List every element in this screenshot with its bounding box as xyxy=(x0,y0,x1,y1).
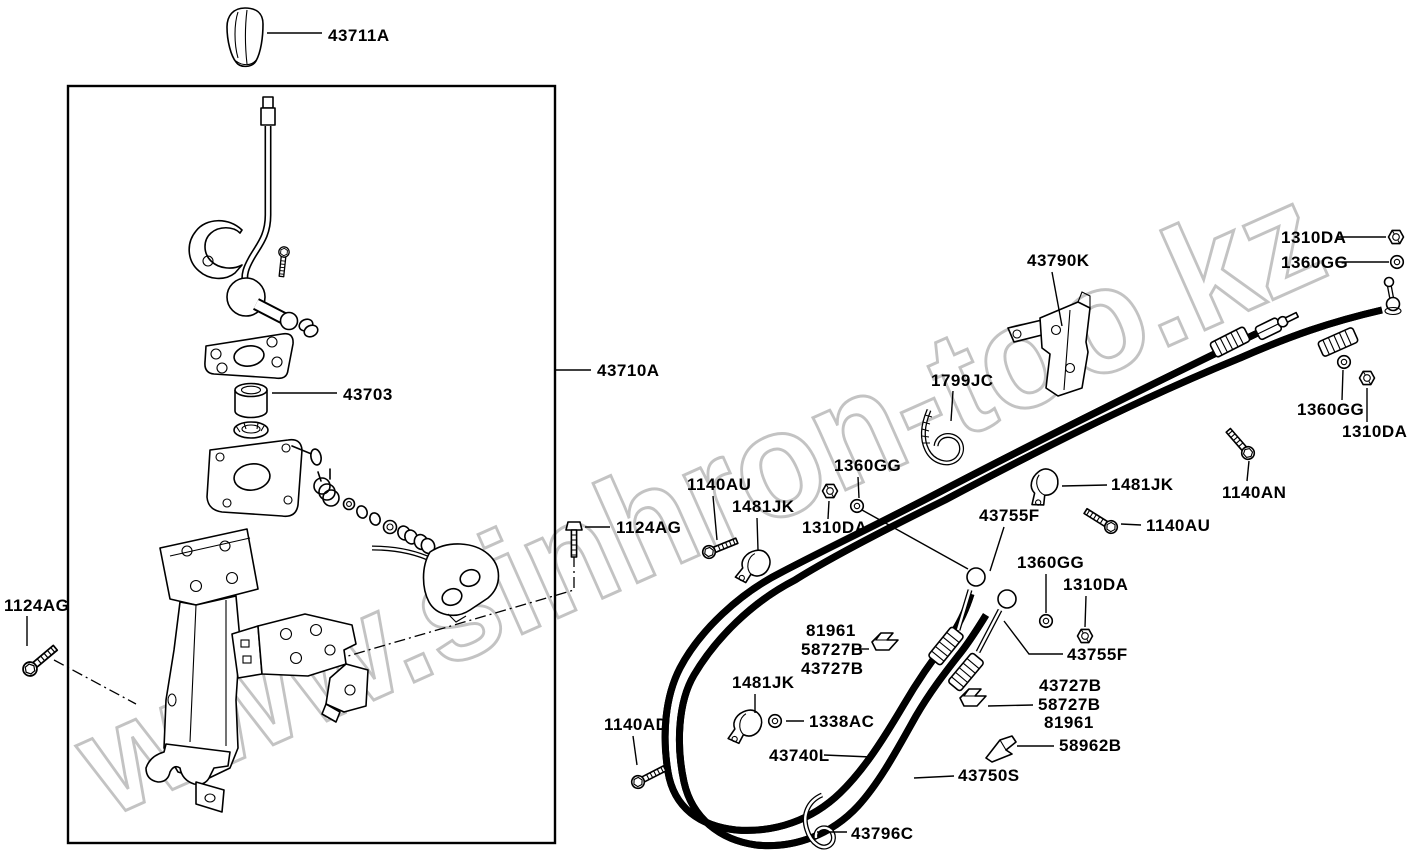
part-label-1360GG-right: 1360GG xyxy=(1297,400,1364,419)
part-label-43710A: 43710A xyxy=(597,361,660,380)
part-label-1481JK-top: 1481JK xyxy=(732,497,795,516)
part-label-1140AN: 1140AN xyxy=(1222,483,1286,502)
nut-1360GG-right xyxy=(1338,356,1351,369)
part-label-43740L: 43740L xyxy=(769,746,830,765)
part-label-1338AC: 1338AC xyxy=(809,712,874,731)
nut-1310DA-topright xyxy=(1389,230,1404,243)
upper-plate-drawing xyxy=(205,334,293,379)
part-label-43727B-left: 43727B xyxy=(801,659,864,678)
shift-lever-drawing xyxy=(189,97,319,339)
bushing-43703-drawing xyxy=(235,384,267,418)
part-label-1140AD: 1140AD xyxy=(604,715,668,734)
part-label-58727B-left: 58727B xyxy=(801,640,864,659)
parts-diagram-canvas: www.sinhron-too.kz xyxy=(0,0,1423,862)
part-label-1360GG-lower: 1360GG xyxy=(1017,553,1084,572)
part-label-1140AU-right: 1140AU xyxy=(1146,516,1210,535)
part-label-43755F-upper: 43755F xyxy=(979,506,1040,525)
part-label-1310DA-topright: 1310DA xyxy=(1281,228,1346,247)
bracket-58962B-drawing xyxy=(986,736,1016,762)
part-label-43703: 43703 xyxy=(343,385,393,404)
part-label-1799JC: 1799JC xyxy=(931,371,994,390)
part-label-1140AU-top: 1140AU xyxy=(687,475,751,494)
clip-1481JK-cable xyxy=(1023,466,1064,508)
shift-knob-drawing xyxy=(227,8,263,66)
parts-diagram-page: www.sinhron-too.kz xyxy=(0,0,1423,862)
nut-1338AC xyxy=(769,715,782,728)
bolt-1140AU-right xyxy=(1082,506,1119,536)
spring-drawing xyxy=(314,469,339,506)
part-label-1310DA-lower: 1310DA xyxy=(1063,575,1128,594)
part-label-1481JK-cable: 1481JK xyxy=(1111,475,1174,494)
seal-ring-drawing xyxy=(234,422,268,438)
part-label-58962B: 58962B xyxy=(1059,736,1122,755)
part-label-1481JK-loop: 1481JK xyxy=(732,673,795,692)
part-label-1124AG-left: 1124AG xyxy=(4,596,69,615)
part-label-1310DA-mid: 1310DA xyxy=(802,518,867,537)
bolt-1140AN xyxy=(1224,426,1257,462)
clip-58727B-left xyxy=(872,633,898,650)
part-label-81961-right: 81961 xyxy=(1044,713,1094,732)
part-label-1310DA-right: 1310DA xyxy=(1342,422,1407,441)
nut-1360GG-lower xyxy=(1040,615,1053,628)
part-label-43796C: 43796C xyxy=(851,824,914,843)
nut-1310DA-right xyxy=(1360,371,1375,384)
nut-1310DA-mid xyxy=(823,484,838,497)
clip-1481JK-loop xyxy=(728,709,763,745)
lever-housing-drawing xyxy=(207,440,323,517)
part-label-58727B-right: 58727B xyxy=(1038,695,1101,714)
part-label-43711A: 43711A xyxy=(328,26,390,45)
nut-1360GG-mid xyxy=(851,500,864,513)
nut-1310DA-lower xyxy=(1078,629,1093,642)
part-label-43790K: 43790K xyxy=(1027,251,1090,270)
part-label-1360GG-mid: 1360GG xyxy=(834,456,901,475)
part-label-43755F-lower: 43755F xyxy=(1067,645,1128,664)
clip-58727B-right xyxy=(960,689,986,706)
part-label-43727B-right: 43727B xyxy=(1039,676,1102,695)
part-label-81961-left: 81961 xyxy=(806,621,856,640)
nut-1360GG-topright xyxy=(1391,256,1404,269)
bolt-1140AD xyxy=(630,763,668,791)
part-label-43750S: 43750S xyxy=(958,766,1020,785)
part-label-1124AG-mid: 1124AG xyxy=(616,518,681,537)
part-label-1360GG-topright: 1360GG xyxy=(1281,253,1348,272)
